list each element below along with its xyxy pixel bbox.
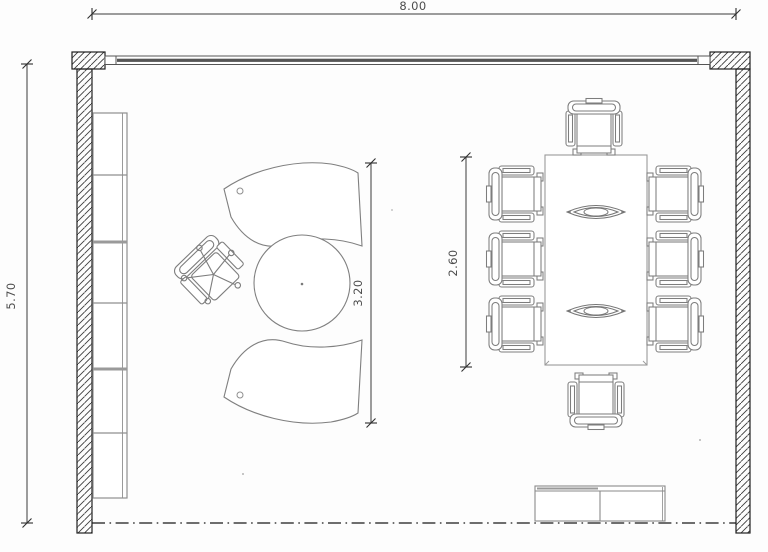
conference-chair-left-2 [487, 231, 544, 287]
conference-chair-top [566, 99, 622, 156]
floor-plan-canvas: 8.00 5.70 3.20 2.60 [0, 0, 768, 552]
wall-corner-top-left [72, 52, 105, 69]
wall-left [77, 69, 92, 533]
conference-chair-right-1 [647, 166, 704, 222]
conference-chair-left-1 [487, 166, 544, 222]
shelf-unit [93, 113, 127, 498]
conference-chair-bottom [568, 373, 624, 430]
desk-bottom-wing [224, 340, 362, 423]
dimension-room-depth: 5.70 [4, 60, 33, 528]
conference-chair-left-3 [487, 296, 544, 352]
conference-chair-right-3 [647, 296, 704, 352]
executive-desk [224, 163, 362, 423]
conference-table [545, 155, 647, 365]
floor-plan-svg: 8.00 5.70 3.20 2.60 [0, 0, 768, 552]
wall-corner-top-right [710, 52, 750, 69]
walls [72, 52, 750, 533]
conference-chair-right-2 [647, 231, 704, 287]
executive-chair [170, 231, 254, 315]
window-band [105, 56, 710, 65]
dimension-label-room-depth: 5.70 [4, 282, 18, 309]
wall-right [736, 69, 750, 533]
desk-top-wing [224, 163, 362, 246]
dimension-room-width: 8.00 [88, 0, 741, 20]
desk-center-point [301, 283, 304, 286]
sideboard [535, 486, 665, 521]
dimension-label-table-span: 2.60 [446, 249, 460, 276]
window-glass-line [117, 59, 697, 62]
dimension-table-span: 2.60 [446, 153, 472, 372]
dimension-label-room-width: 8.00 [399, 0, 426, 13]
dimension-label-desk-span: 3.20 [351, 279, 365, 306]
